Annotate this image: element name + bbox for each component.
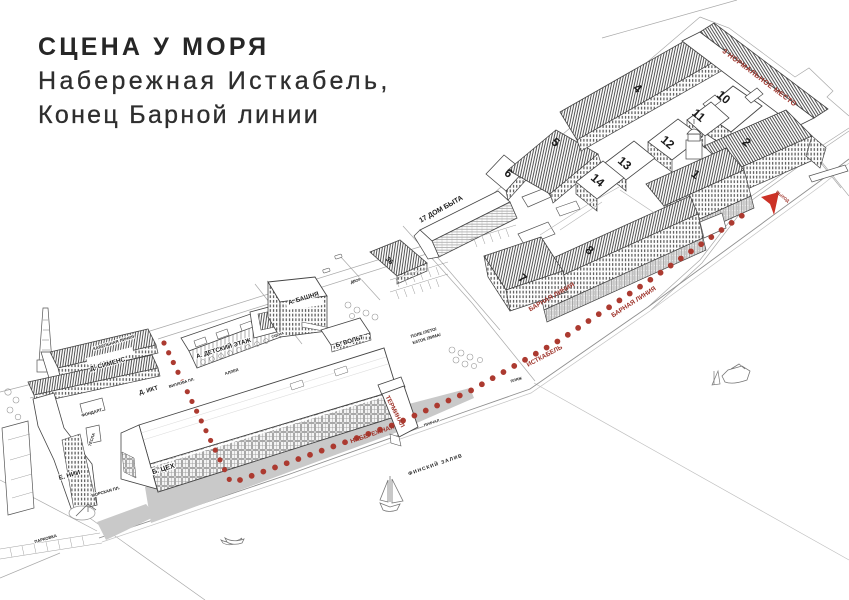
svg-text:АЛЛЕЯ: АЛЛЕЯ	[224, 367, 239, 376]
svg-text:ВИЛЛОВА ПЛ.: ВИЛЛОВА ПЛ.	[168, 377, 195, 389]
svg-text:ПРИЧАЛ: ПРИЧАЛ	[423, 418, 440, 427]
svg-text:ПЛЯЖ: ПЛЯЖ	[510, 376, 523, 383]
svg-text:ДВОР: ДВОР	[350, 277, 362, 284]
svg-text:ФИНСКИЙ ЗАЛИВ: ФИНСКИЙ ЗАЛИВ	[407, 451, 464, 477]
svg-text:ПАРКОВКА: ПАРКОВКА	[34, 533, 58, 544]
svg-text:МОРСКАЯ ПЛ.: МОРСКАЯ ПЛ.	[91, 485, 121, 498]
svg-text:Д. ИКТ: Д. ИКТ	[139, 385, 160, 396]
